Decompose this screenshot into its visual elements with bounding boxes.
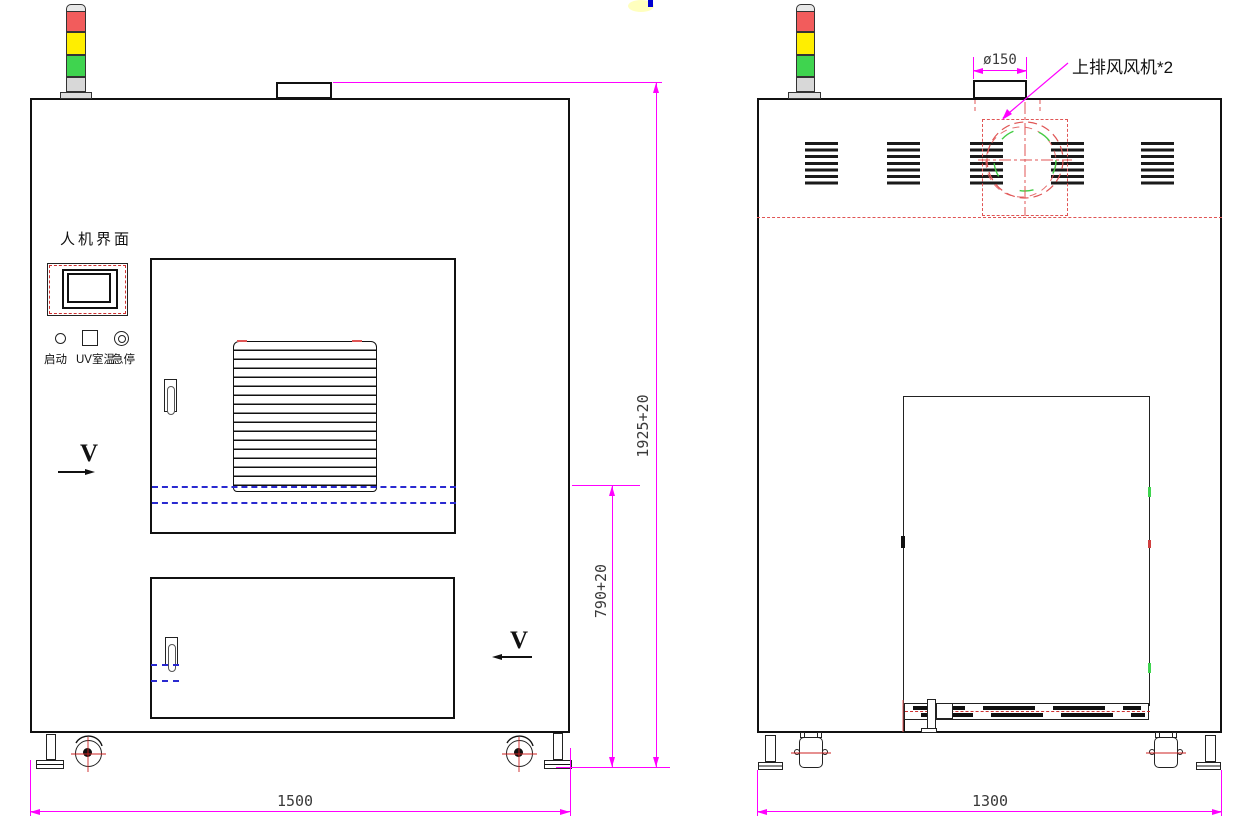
louver-red-mark bbox=[237, 340, 247, 342]
latch-mark bbox=[1148, 540, 1151, 548]
start-button-label: 启动 bbox=[44, 351, 67, 367]
dim-arrow-icon bbox=[1017, 68, 1027, 74]
tower-base-plate bbox=[60, 92, 92, 99]
caster-hub bbox=[83, 748, 92, 757]
estop-button[interactable] bbox=[114, 331, 129, 346]
top-duct-rear bbox=[973, 80, 1027, 99]
latch-mark bbox=[1148, 663, 1151, 673]
tower-base-pole bbox=[796, 77, 815, 92]
uv-temp-button[interactable] bbox=[82, 330, 98, 346]
panel-seam-centerline bbox=[757, 217, 1222, 218]
leveling-foot-stem bbox=[765, 735, 776, 762]
dim-label-1300: 1300 bbox=[950, 792, 1030, 810]
dim-label-1925: 1925+20 bbox=[634, 388, 652, 464]
hmi-screen[interactable] bbox=[67, 273, 111, 303]
extension-line bbox=[556, 767, 670, 768]
extension-line bbox=[30, 760, 31, 816]
dim-arrow-icon bbox=[609, 486, 615, 496]
rail-bracket-block bbox=[936, 703, 953, 719]
fan-housing-outline bbox=[982, 119, 1068, 216]
tower-yellow-light bbox=[796, 32, 815, 55]
tower-base-pole bbox=[66, 77, 86, 92]
tower-base-plate bbox=[788, 92, 821, 99]
leveling-foot-plate bbox=[36, 760, 64, 769]
tower-red-light bbox=[796, 11, 815, 32]
hmi-screen-frame bbox=[62, 269, 118, 309]
louver-panel bbox=[233, 341, 377, 492]
lower-door-handle-grip bbox=[168, 644, 176, 672]
tower-red-light bbox=[66, 11, 86, 32]
caster-nut bbox=[822, 749, 828, 755]
caster-body bbox=[1154, 737, 1178, 768]
upper-door-handle-grip bbox=[167, 386, 175, 415]
dim-label-1500: 1500 bbox=[255, 792, 335, 810]
dim-arrow-icon bbox=[609, 757, 615, 767]
uv-temp-button-label: UV室温 bbox=[76, 351, 115, 367]
extension-line bbox=[572, 485, 640, 486]
hmi-label: 人机界面 bbox=[60, 228, 132, 249]
caster-hub bbox=[514, 748, 523, 757]
dim-label-790: 790+20 bbox=[592, 553, 610, 629]
section-marker-v-left: V bbox=[80, 440, 98, 468]
hidden-line-short bbox=[151, 680, 179, 682]
engineering-drawing: 人机界面 启动 UV室温 急停 V bbox=[0, 0, 1238, 824]
leveling-foot-plate bbox=[758, 762, 783, 770]
top-duct-front bbox=[276, 82, 332, 99]
tower-yellow-light bbox=[66, 32, 86, 55]
fan-callout-label: 上排风风机*2 bbox=[1072, 53, 1173, 78]
caster-nut bbox=[1149, 749, 1155, 755]
section-arrow-line bbox=[500, 656, 532, 658]
lower-door[interactable] bbox=[150, 577, 455, 719]
leveling-foot-stem bbox=[46, 734, 56, 760]
hinge-mark bbox=[901, 536, 905, 548]
leveling-foot-stem bbox=[1205, 735, 1216, 762]
vent-grille bbox=[805, 142, 838, 188]
dim-arrow-icon bbox=[30, 809, 40, 815]
vent-grille bbox=[1141, 142, 1174, 188]
dim-line-1500 bbox=[30, 811, 570, 812]
leveling-foot-stem bbox=[553, 733, 563, 760]
rail-bracket-foot bbox=[921, 728, 937, 733]
dim-label-duct: ø150 bbox=[971, 52, 1029, 68]
rear-opening bbox=[903, 396, 1150, 706]
extension-line bbox=[333, 82, 662, 83]
tower-green-light bbox=[796, 55, 815, 77]
caster-nut bbox=[1177, 749, 1183, 755]
dim-line-1925 bbox=[656, 82, 657, 768]
section-arrow-right-icon bbox=[85, 469, 95, 475]
louver-red-mark bbox=[352, 340, 362, 342]
estop-button-label: 急停 bbox=[112, 351, 135, 367]
dim-arrow-icon bbox=[560, 809, 570, 815]
section-marker-v-right: V bbox=[510, 627, 528, 655]
start-button[interactable] bbox=[55, 333, 66, 344]
hidden-line-short bbox=[151, 664, 179, 666]
vent-grille bbox=[887, 142, 920, 188]
artifact-mark bbox=[648, 0, 653, 7]
hidden-line-conveyor bbox=[152, 502, 456, 504]
dim-arrow-icon bbox=[653, 757, 659, 767]
estop-inner-ring bbox=[118, 335, 126, 343]
dim-arrow-icon bbox=[1212, 809, 1222, 815]
dim-line-1300 bbox=[757, 811, 1222, 812]
latch-mark bbox=[1148, 487, 1151, 497]
extension-line bbox=[570, 748, 571, 816]
caster-body bbox=[799, 737, 823, 768]
hidden-line-conveyor bbox=[152, 486, 456, 488]
dim-arrow-icon bbox=[653, 83, 659, 93]
dim-arrow-icon bbox=[973, 68, 983, 74]
leveling-foot-plate bbox=[1196, 762, 1221, 770]
tower-green-light bbox=[66, 55, 86, 77]
hmi-screen-bezel bbox=[47, 263, 128, 316]
dim-line-790 bbox=[612, 485, 613, 768]
caster-nut bbox=[794, 749, 800, 755]
section-arrow-left-icon bbox=[492, 654, 502, 660]
dim-arrow-icon bbox=[757, 809, 767, 815]
